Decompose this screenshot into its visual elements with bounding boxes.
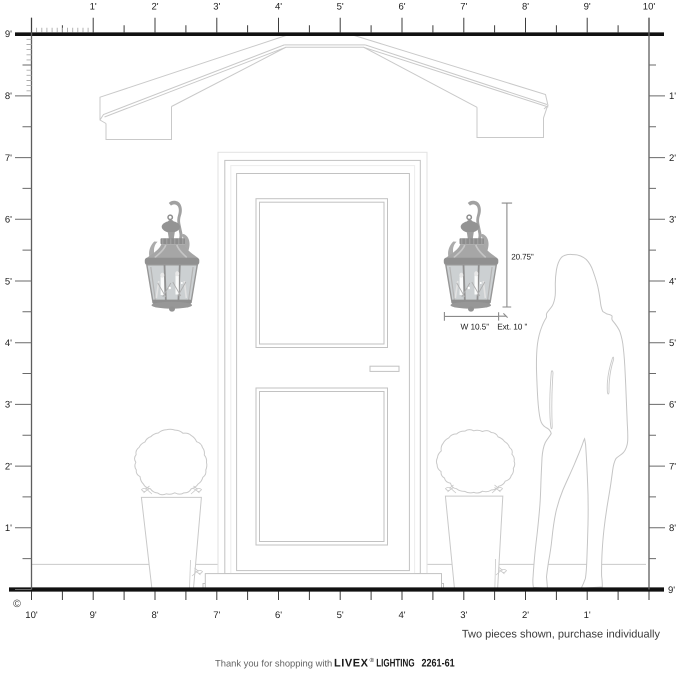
svg-text:5': 5': [669, 338, 676, 349]
svg-text:1': 1': [584, 610, 591, 621]
svg-text:4': 4': [275, 1, 282, 12]
svg-text:1': 1': [90, 1, 97, 12]
svg-text:Ext. 10 ”: Ext. 10 ”: [497, 321, 527, 331]
svg-text:Thank you for shopping with: Thank you for shopping with: [215, 658, 332, 669]
svg-text:2261-61: 2261-61: [422, 658, 455, 670]
svg-text:6': 6': [275, 610, 282, 621]
svg-text:4': 4': [398, 610, 405, 621]
svg-text:8': 8': [151, 610, 158, 621]
svg-text:8': 8': [5, 91, 12, 102]
svg-text:5': 5': [5, 276, 12, 287]
svg-text:3': 3': [460, 610, 467, 621]
svg-text:10': 10': [643, 1, 656, 12]
svg-text:2': 2': [151, 1, 158, 12]
svg-text:®: ®: [370, 657, 375, 664]
svg-text:6': 6': [5, 215, 12, 226]
svg-text:1': 1': [5, 523, 12, 534]
svg-text:7': 7': [5, 153, 12, 164]
svg-text:6': 6': [398, 1, 405, 12]
svg-text:©: ©: [13, 598, 21, 610]
svg-text:7': 7': [213, 610, 220, 621]
svg-text:10': 10': [25, 610, 38, 621]
svg-text:3': 3': [213, 1, 220, 12]
svg-text:LIVEX: LIVEX: [334, 658, 369, 670]
svg-text:2': 2': [5, 461, 12, 472]
svg-text:2': 2': [669, 153, 676, 164]
svg-text:2': 2': [522, 610, 529, 621]
svg-text:8': 8': [669, 523, 676, 534]
svg-text:6': 6': [669, 400, 676, 411]
svg-text:5': 5': [337, 610, 344, 621]
svg-text:8': 8': [522, 1, 529, 12]
svg-text:5': 5': [337, 1, 344, 12]
svg-text:20.75”: 20.75”: [511, 252, 534, 261]
svg-text:9': 9': [668, 585, 675, 596]
svg-text:4': 4': [669, 276, 676, 287]
svg-text:3': 3': [5, 400, 12, 411]
svg-text:9': 9': [584, 1, 591, 12]
svg-text:9': 9': [5, 29, 12, 40]
svg-text:9': 9': [90, 610, 97, 621]
svg-text:4': 4': [5, 338, 12, 349]
svg-text:7': 7': [669, 461, 676, 472]
svg-text:W 10.5”: W 10.5”: [461, 321, 490, 331]
svg-text:LIGHTING: LIGHTING: [376, 658, 414, 670]
svg-text:3': 3': [669, 215, 676, 226]
svg-text:7': 7': [460, 1, 467, 12]
svg-text:Two pieces shown, purchase ind: Two pieces shown, purchase individually: [462, 629, 661, 641]
svg-text:1': 1': [669, 91, 676, 102]
